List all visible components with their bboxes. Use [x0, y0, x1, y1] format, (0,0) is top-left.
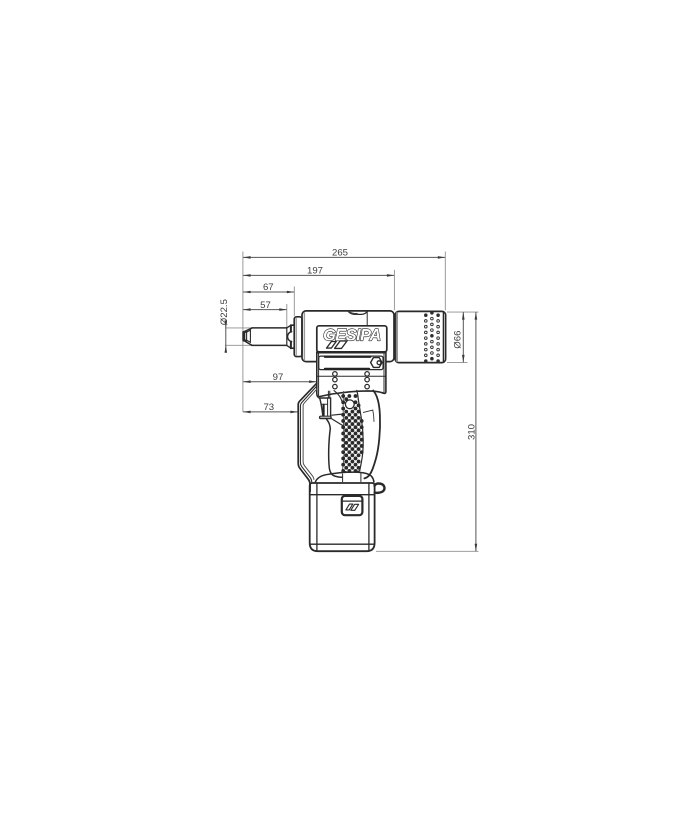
svg-text:Ø22.5: Ø22.5 [219, 299, 230, 325]
svg-text:Ø66: Ø66 [452, 331, 463, 349]
svg-text:57: 57 [260, 300, 271, 311]
svg-text:73: 73 [263, 402, 274, 413]
svg-text:197: 197 [307, 266, 323, 277]
svg-text:310: 310 [467, 424, 478, 440]
svg-text:67: 67 [263, 282, 274, 293]
svg-text:97: 97 [273, 372, 284, 383]
svg-text:265: 265 [332, 248, 348, 259]
